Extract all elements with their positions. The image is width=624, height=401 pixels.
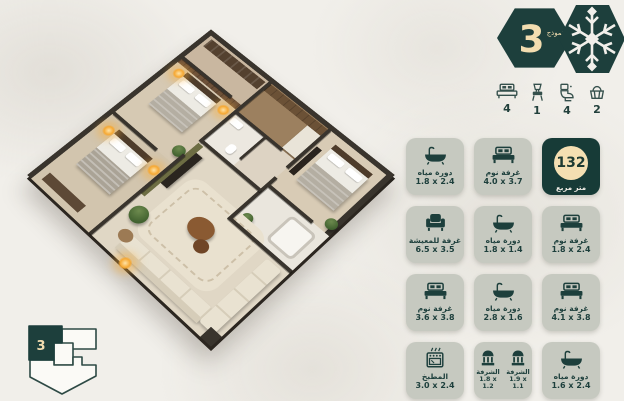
model-number: 3 <box>518 17 544 61</box>
room-dimensions: 4.0 x 3.7 <box>474 177 532 186</box>
summary-bathrooms: 4 <box>554 83 580 117</box>
room-card-bath-3: دورة مياه 2.8 x 1.6 <box>474 274 532 331</box>
room-label: غرفة نوم <box>474 168 532 177</box>
room-card-bed-4: غرفة نوم 4.1 x 3.8 <box>542 274 600 331</box>
room-dimensions: 1.9 x 1.1 <box>505 376 531 390</box>
bathtub-icon <box>422 146 449 165</box>
room-dimensions: 4.1 x 3.8 <box>542 313 600 322</box>
bedrooms-count: 4 <box>494 102 520 115</box>
total-area-card: 132 متر مربع <box>542 138 600 195</box>
bathrooms-count: 4 <box>554 104 580 117</box>
balcony-icon <box>480 350 496 366</box>
area-value: 132 <box>554 146 588 180</box>
room-dimensions: 1.8 x 2.4 <box>406 177 464 186</box>
summary-balconies: 2 <box>584 83 610 117</box>
balcony-icon <box>510 350 526 366</box>
bed-icon <box>558 214 585 233</box>
apartment-plan <box>27 29 395 346</box>
room-dimensions: 1.8 x 1.4 <box>474 245 532 254</box>
summary-bedrooms: 4 <box>494 83 520 117</box>
room-label: دورة مياه <box>406 168 464 177</box>
bed-icon <box>422 282 449 301</box>
bed-icon <box>558 282 585 301</box>
living-count: 1 <box>524 104 550 117</box>
room-label: غرفة للمعيشة <box>406 236 464 245</box>
room-card-bed-2: غرفة نوم 1.8 x 2.4 <box>542 206 600 263</box>
room-label: دورة مياه <box>474 304 532 313</box>
feature-summary: 4 1 4 2 <box>494 83 610 117</box>
room-dimensions: 1.8 x 2.4 <box>542 245 600 254</box>
bathtub-icon <box>558 350 585 369</box>
room-dimensions: 6.5 x 3.5 <box>406 245 464 254</box>
room-label: دورة مياه <box>474 236 532 245</box>
room-label: الشرفة <box>505 368 531 376</box>
summary-living: 1 <box>524 83 550 117</box>
area-unit: متر مربع <box>542 184 600 192</box>
bed-icon <box>495 83 519 100</box>
room-card-bath-4: دورة مياه 1.6 x 2.4 <box>542 342 600 399</box>
balcony-1: الشرفة 1.8 x 1.2 <box>475 349 501 399</box>
snowflake-pattern-icon <box>559 5 624 73</box>
bed-icon <box>490 146 517 165</box>
balconies-count: 2 <box>584 103 610 116</box>
room-label: المطبخ <box>406 372 464 381</box>
room-card-living: غرفة للمعيشة 6.5 x 3.5 <box>406 206 464 263</box>
room-card-bed-1: غرفة نوم 4.0 x 3.7 <box>474 138 532 195</box>
stove-icon <box>424 347 446 369</box>
basket-icon <box>588 83 606 101</box>
room-card-bed-3: غرفة نوم 3.6 x 3.8 <box>406 274 464 331</box>
room-card-bath-2: دورة مياه 1.8 x 1.4 <box>474 206 532 263</box>
chair-icon <box>530 83 545 102</box>
room-dimensions: 3.6 x 3.8 <box>406 313 464 322</box>
room-card-balconies: الشرفة 1.8 x 1.2 الشرفة 1.9 x 1.1 <box>474 342 532 399</box>
room-label: الشرفة <box>475 368 501 376</box>
room-label: دورة مياه <box>542 372 600 381</box>
room-dimensions: 3.0 x 2.4 <box>406 381 464 390</box>
room-cards-grid: دورة مياه 1.8 x 2.4 غرفة نوم 4.0 x 3.7 1… <box>406 138 600 399</box>
toilet-icon <box>558 83 576 102</box>
unit-3-number: 3 <box>36 339 45 354</box>
room-card-bath-1: دورة مياه 1.8 x 2.4 <box>406 138 464 195</box>
floorplan-3d-render <box>0 0 420 360</box>
room-dimensions: 1.6 x 2.4 <box>542 381 600 390</box>
room-label: غرفة نوم <box>542 304 600 313</box>
room-label: غرفة نوم <box>542 236 600 245</box>
room-label: غرفة نوم <box>406 304 464 313</box>
armchair-icon <box>423 212 448 233</box>
balcony-2: الشرفة 1.9 x 1.1 <box>505 349 531 399</box>
room-dimensions: 1.8 x 1.2 <box>475 376 501 390</box>
room-card-kitchen: المطبخ 3.0 x 2.4 <box>406 342 464 399</box>
bathtub-icon <box>490 214 517 233</box>
unit-locator-plan: 3 <box>16 318 108 400</box>
room-dimensions: 2.8 x 1.6 <box>474 313 532 322</box>
bathtub-icon <box>490 282 517 301</box>
